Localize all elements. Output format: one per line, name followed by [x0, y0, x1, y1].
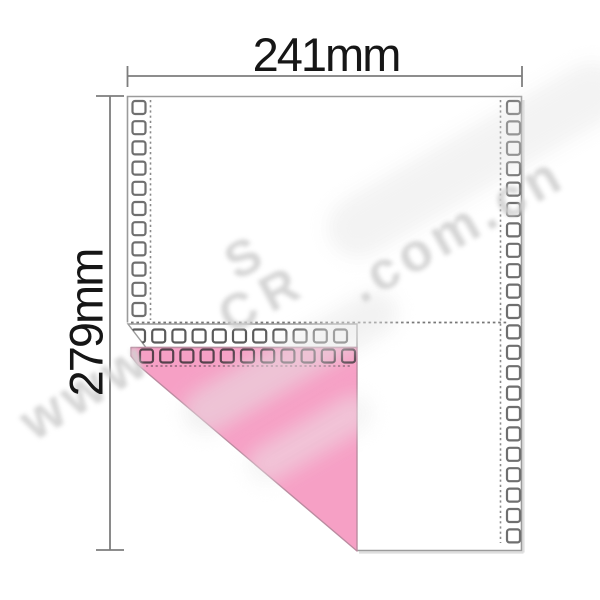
sheet-lower-right-section: [357, 323, 522, 551]
product-image: www S CR .com.cn 241mm 279mm: [0, 0, 600, 600]
folded-white-strip: [128, 324, 357, 348]
height-dimension-label: 279mm: [63, 250, 110, 397]
pink-copy-sheet: [131, 348, 357, 552]
sheet-top-section: [128, 97, 522, 323]
width-dimension-label: 241mm: [253, 31, 400, 78]
